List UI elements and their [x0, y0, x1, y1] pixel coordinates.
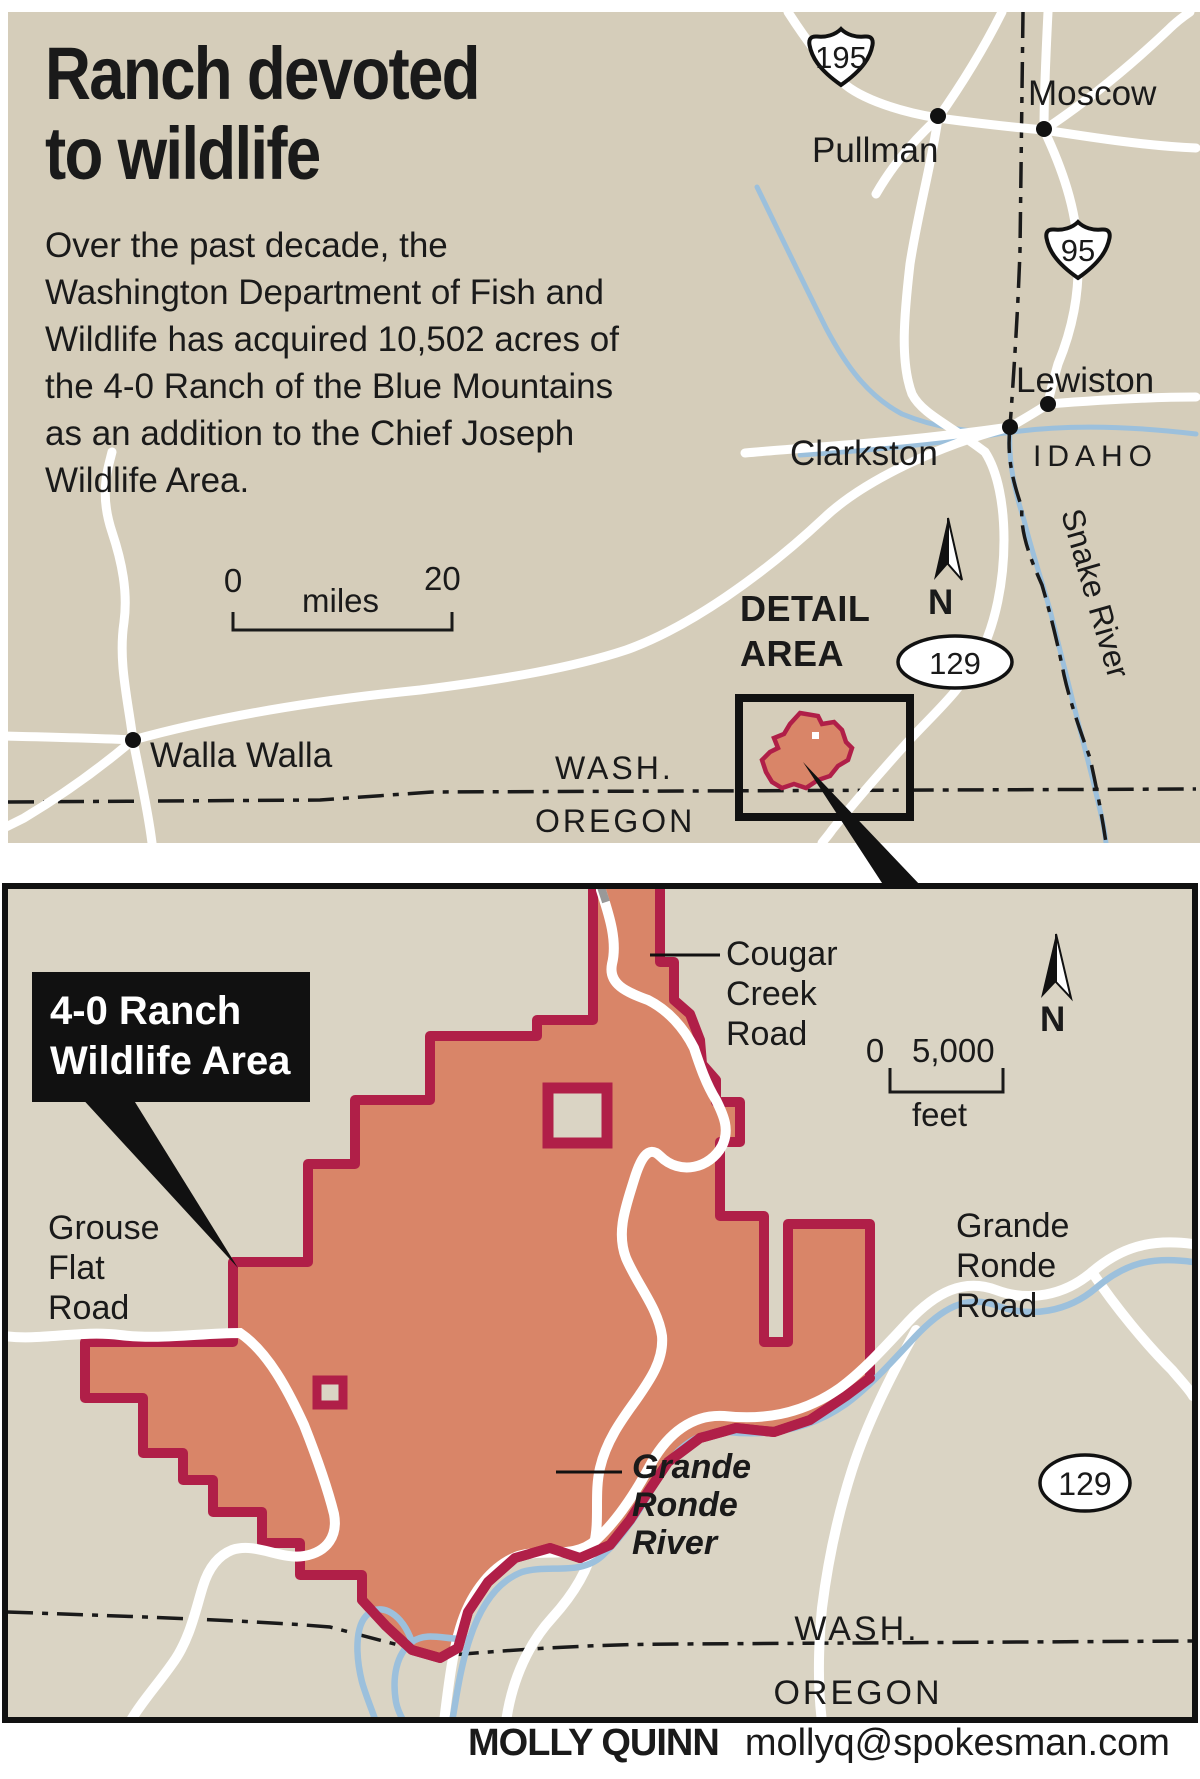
walla-walla-label: Walla Walla: [150, 736, 332, 776]
us95-shield-label: 95: [1043, 233, 1113, 269]
detail-wash-label: WASH.: [772, 1610, 942, 1649]
graphic-title: Ranch devotedto wildlife: [45, 34, 479, 194]
intro-text: Over the past decade, theWashington Depa…: [45, 222, 619, 504]
locator-scale-unit: miles: [302, 582, 379, 620]
infographic-page: Ranch devotedto wildlife Over the past d…: [0, 0, 1200, 1779]
wash-label: WASH.: [555, 750, 674, 787]
detail-oregon-label: OREGON: [758, 1674, 958, 1713]
credit-author: MOLLY QUINN: [468, 1722, 719, 1764]
clarkston-dot: [1002, 419, 1018, 435]
locator-north-label: N: [928, 583, 953, 623]
clarkston-label: Clarkston: [790, 434, 938, 474]
cougar-creek-road-label: CougarCreekRoad: [726, 934, 838, 1054]
wildlife-area-callout: 4-0 RanchWildlife Area: [32, 972, 310, 1102]
pullman-label: Pullman: [812, 131, 938, 171]
wa129-detail-shield-label: 129: [1040, 1466, 1130, 1503]
detail-scale-start: 0: [860, 1032, 890, 1070]
detail-north-label: N: [1040, 1000, 1065, 1040]
grande-ronde-road-label: GrandeRondeRoad: [956, 1206, 1069, 1326]
wa129-shield-label: 129: [915, 646, 995, 682]
inholding-square-small: [317, 1380, 343, 1405]
lewiston-label: Lewiston: [1016, 361, 1154, 401]
detail-scale-end: 5,000: [912, 1032, 995, 1070]
credit-line: MOLLY QUINNmollyq@spokesman.com: [468, 1722, 1170, 1765]
us195-shield-label: 195: [806, 40, 876, 76]
detail-area-label: DETAILAREA: [740, 586, 870, 676]
mini-map-dot: [812, 732, 819, 739]
grande-ronde-river-label: GrandeRondeRiver: [632, 1448, 751, 1562]
credit-email: mollyq@spokesman.com: [745, 1722, 1170, 1764]
walla-walla-dot: [125, 732, 141, 748]
moscow-label: Moscow: [1028, 74, 1156, 114]
locator-scale-start: 0: [221, 562, 245, 600]
pullman-dot: [930, 108, 946, 124]
idaho-label: IDAHO: [1033, 440, 1158, 474]
moscow-dot: [1036, 121, 1052, 137]
detail-scale-unit: feet: [912, 1096, 967, 1134]
grouse-flat-road-label: GrouseFlatRoad: [48, 1208, 160, 1328]
locator-scale-end: 20: [424, 560, 461, 598]
oregon-label: OREGON: [535, 803, 695, 840]
inholding-square: [548, 1088, 607, 1143]
